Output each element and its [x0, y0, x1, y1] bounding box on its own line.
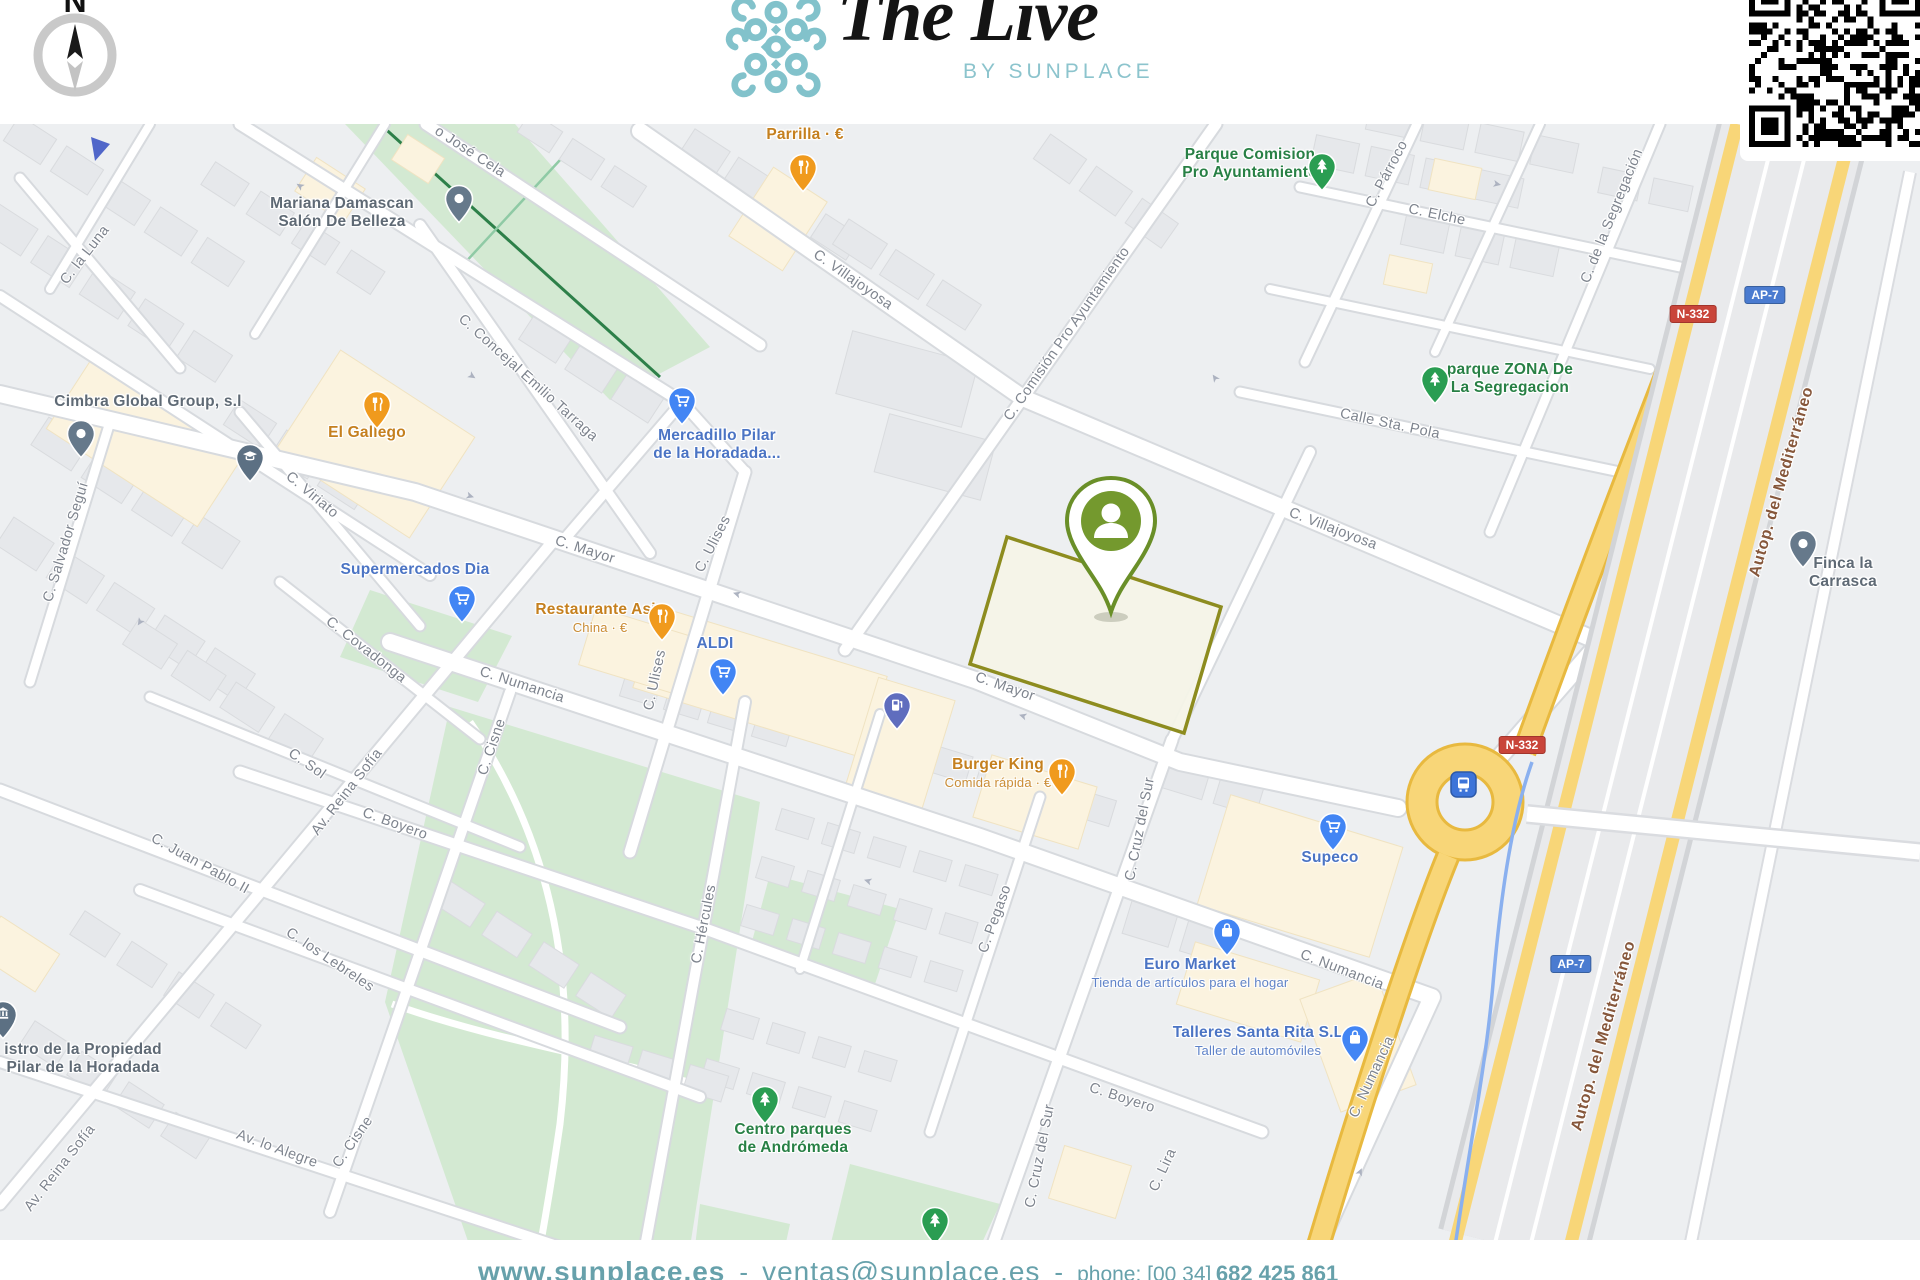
- poi-label-parque-comision: Parque Comision Pro Ayuntamiento: [1182, 146, 1318, 182]
- street-label-jose-cela: o José Cela: [432, 123, 509, 181]
- poi-pin-centro-parques: [750, 1085, 780, 1130]
- street-label-concejal: C. Concejal Emilio Tarraga: [455, 311, 601, 445]
- poi-label-euro-market: Euro MarketTienda de artículos para el h…: [1092, 956, 1289, 992]
- street-label-sol: C. Sol: [285, 745, 328, 782]
- street-label-cisne-2: C. Cisne: [330, 1113, 377, 1170]
- street-label-covadonga: C. Covadonga: [323, 614, 410, 687]
- poi-subtitle-restaurante-asia: China · €: [535, 619, 664, 637]
- pin-fuel-station: [882, 691, 912, 736]
- bag-pin-icon: [1212, 917, 1242, 957]
- route-badge-n332-a: N-332: [1670, 305, 1717, 323]
- bus-icon: [1450, 771, 1477, 798]
- street-label-la-luna: C. la Luna: [57, 222, 113, 287]
- map-label-overlay: o José CelaC. la LunaC. Salvador SeguíC.…: [0, 124, 1920, 1240]
- route-badge-n332-b: N-332: [1499, 736, 1546, 754]
- street-label-numancia-1: C. Numancia: [478, 664, 567, 706]
- poi-subtitle-burger-king: Comida rápida · €: [945, 774, 1052, 792]
- route-badge-ap7-b: AP-7: [1550, 955, 1591, 973]
- bag-pin-icon: [1340, 1024, 1370, 1064]
- street-label-lebreles: C. los Lebreles: [283, 925, 377, 996]
- poi-pin-parque-comision: [1307, 152, 1337, 197]
- poi-pin-parrilla: [788, 153, 818, 198]
- website-link[interactable]: www.sunplace.es: [478, 1256, 725, 1280]
- logo-title: The Live: [837, 0, 1098, 59]
- restaurant-pin-icon: [788, 153, 818, 193]
- compass-icon: N: [15, 0, 135, 110]
- restaurant-pin-icon: [362, 390, 392, 430]
- logo: The Live BY SUNPLACE: [725, 0, 1205, 124]
- person-pin-icon: [1065, 476, 1157, 624]
- contact-line: www.sunplace.es-ventas@sunplace.es-phone…: [478, 1256, 1338, 1280]
- poi-label-parrilla: Parrilla · €: [766, 126, 843, 144]
- poi-pin-parque-zona: [1420, 365, 1450, 410]
- poi-pin-mariana: [444, 184, 474, 229]
- poi-pin-supermercados-dia: [447, 584, 477, 629]
- street-label-viriato: C. Viriato: [283, 469, 342, 522]
- street-label-boyero-2: C. Boyero: [1087, 1080, 1157, 1116]
- email-link[interactable]: ventas@sunplace.es: [762, 1256, 1040, 1280]
- bank-pin-icon: [0, 1000, 18, 1040]
- logo-ornament-icon: [725, 0, 827, 98]
- poi-label-mariana: Mariana Damascan Salón De Belleza: [270, 195, 414, 231]
- road-direction-arrow: ➤: [731, 586, 744, 601]
- logo-subtitle: BY SUNPLACE: [963, 60, 1154, 84]
- poi-pin-restaurante-asia: [647, 602, 677, 647]
- street-label-cisne-1: C. Cisne: [475, 717, 509, 778]
- separator: -: [739, 1257, 748, 1280]
- street-label-juan-pablo: C. Juan Pablo II: [148, 830, 252, 897]
- street-label-mayor-1: C. Mayor: [553, 533, 617, 567]
- poi-pin-supeco: [1318, 812, 1348, 857]
- separator: -: [1054, 1257, 1063, 1280]
- road-direction-arrow: ➤: [465, 368, 480, 384]
- street-label-lira: C. Lira: [1146, 1146, 1180, 1194]
- cart-pin-icon: [667, 386, 697, 426]
- poi-label-restaurante-asia: Restaurante AsiaChina · €: [535, 601, 664, 637]
- street-label-villajoyosa-2: C. Villajoyosa: [1287, 505, 1380, 553]
- road-direction-arrow: ➤: [132, 615, 148, 630]
- poi-pin-talleres: [1340, 1024, 1370, 1069]
- street-label-boyero-1: C. Boyero: [360, 805, 429, 843]
- restaurant-pin-icon: [1047, 757, 1077, 797]
- poi-label-burger-king: Burger KingComida rápida · €: [945, 756, 1052, 792]
- poi-pin-finca: [1788, 529, 1818, 574]
- road-direction-arrow: ➤: [1017, 708, 1030, 723]
- road-direction-arrow: ➤: [293, 178, 308, 194]
- street-label-cruz-2: C. Cruz del Sur: [1022, 1103, 1058, 1209]
- poi-label-registro: istro de la Propiedad Pilar de la Horada…: [4, 1041, 162, 1077]
- qr-code: [1740, 0, 1920, 161]
- poi-subtitle-euro-market: Tienda de artículos para el hogar: [1092, 974, 1289, 992]
- pin-education: [235, 443, 265, 488]
- street-label-hercules: C. Hércules: [688, 883, 719, 965]
- fuel-pin-icon: [882, 691, 912, 731]
- poi-pin-euro-market: [1212, 917, 1242, 962]
- poi-label-mercadillo: Mercadillo Pilar de la Horadada...: [653, 427, 780, 463]
- poi-pin-aldi: [708, 657, 738, 702]
- poi-label-cimbra: Cimbra Global Group, s.l: [54, 393, 241, 411]
- road-direction-arrow: ➤: [1352, 1165, 1368, 1179]
- road-direction-arrow: ➤: [862, 873, 875, 888]
- street-label-ulises-1: C. Ulises: [692, 513, 734, 575]
- street-label-cruz-1: C. Cruz del Sur: [1122, 776, 1158, 882]
- tree-pin-icon: [750, 1085, 780, 1125]
- street-label-comision: C. Comisión Pro Ayuntamiento: [1001, 244, 1134, 424]
- pin-partial-pin: [87, 135, 113, 168]
- street-label-reina-sofia-2: Av. Reina Sofía: [21, 1122, 99, 1215]
- poi-label-talleres: Talleres Santa Rita S.LTaller de automóv…: [1173, 1024, 1344, 1060]
- poi-pin-mercadillo: [667, 386, 697, 431]
- header: N: [0, 0, 1920, 124]
- street-label-numancia-2: C. Numancia: [1298, 947, 1386, 994]
- poi-pin-el-gallego: [362, 390, 392, 435]
- street-label-segregacion: C. de la Segregación: [1578, 147, 1647, 286]
- street-label-ulises-2: C. Ulises: [641, 648, 669, 712]
- phone-number: 682 425 861: [1216, 1261, 1338, 1280]
- cart-pin-icon: [447, 584, 477, 624]
- street-label-alegre: Av. lo Alegre: [234, 1127, 320, 1171]
- poi-subtitle-talleres: Taller de automóviles: [1173, 1042, 1344, 1060]
- dot-pin-icon: [444, 184, 474, 224]
- street-label-mayor-2: C. Mayor: [973, 669, 1037, 704]
- dot-pin-icon: [66, 419, 96, 459]
- street-label-salvador-segui: C. Salvador Seguí: [40, 480, 92, 604]
- cap-pin-icon: [235, 443, 265, 483]
- restaurant-pin-icon: [647, 602, 677, 642]
- street-label-sta-pola: Calle Sta. Pola: [1338, 406, 1441, 443]
- poi-pin-registro: [0, 1000, 18, 1045]
- street-label-pegaso: C. Pegaso: [975, 883, 1014, 955]
- poi-label-aldi: ALDI: [697, 635, 734, 653]
- footer: www.sunplace.es-ventas@sunplace.es-phone…: [0, 1240, 1920, 1280]
- road-direction-arrow: ➤: [1207, 370, 1223, 385]
- pin-transit-stop: [1450, 771, 1477, 803]
- tree-pin-icon: [1420, 365, 1450, 405]
- partial-pin-icon: [87, 135, 113, 163]
- poi-pin-burger-king: [1047, 757, 1077, 802]
- map: o José CelaC. la LunaC. Salvador SeguíC.…: [0, 124, 1920, 1240]
- street-label-parroco: C. Párroco: [1363, 138, 1412, 210]
- property-location-marker: [1065, 476, 1157, 629]
- street-label-villajoyosa-1: C. Villajoyosa: [810, 247, 896, 314]
- poi-label-supermercados-dia: Supermercados Dia: [341, 561, 490, 579]
- flyer-page: o José CelaC. la LunaC. Salvador SeguíC.…: [0, 0, 1920, 1280]
- tree-pin-icon: [1307, 152, 1337, 192]
- cart-pin-icon: [708, 657, 738, 697]
- route-badge-ap7-a: AP-7: [1744, 286, 1785, 304]
- street-label-elche: C. Elche: [1407, 201, 1467, 229]
- dot-pin-icon: [1788, 529, 1818, 569]
- cart-pin-icon: [1318, 812, 1348, 852]
- poi-label-parque-zona: parque ZONA De La Segregacion: [1447, 361, 1573, 397]
- phone-label: phone: [00 34]: [1077, 1263, 1211, 1280]
- road-direction-arrow: ➤: [464, 488, 477, 503]
- road-direction-arrow: ➤: [1491, 177, 1503, 192]
- poi-pin-cimbra: [66, 419, 96, 464]
